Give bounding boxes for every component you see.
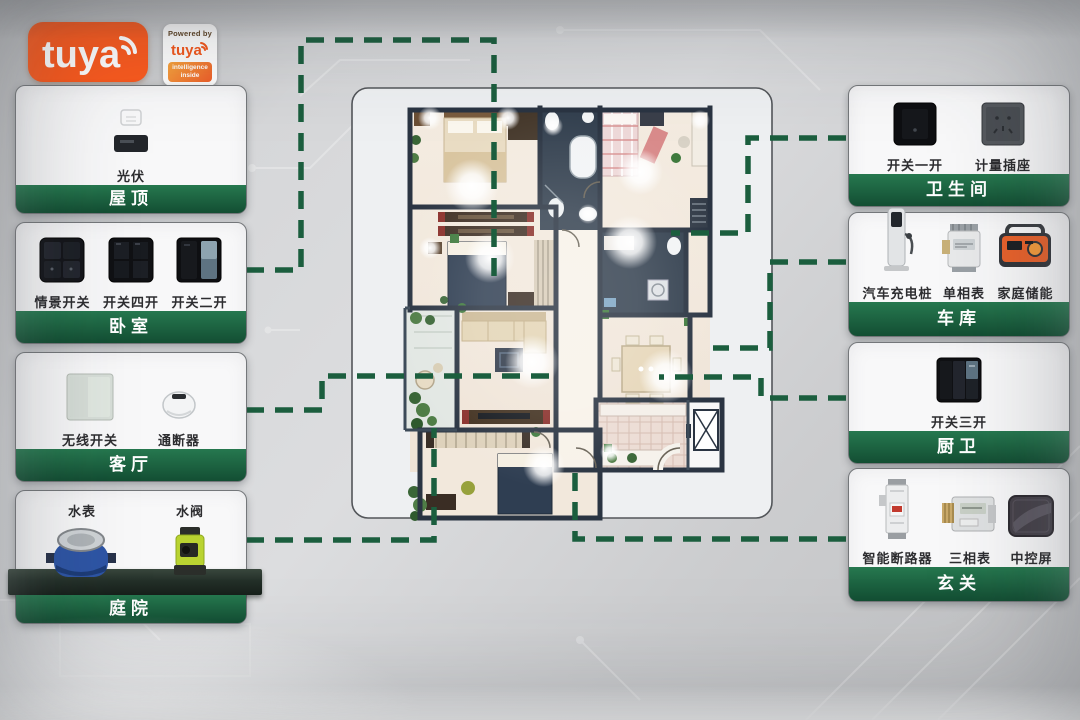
device-switch-4gang: 开关四开 bbox=[103, 237, 159, 311]
badge-intelligence-inside-text: intelligence inside bbox=[168, 62, 212, 82]
device-solar: 光伏 bbox=[108, 107, 154, 185]
switch-3gang-icon bbox=[936, 357, 982, 403]
device-label: 通断器 bbox=[158, 430, 200, 449]
scene-switch-icon bbox=[39, 237, 85, 283]
switch-1gang-icon bbox=[893, 102, 937, 146]
device-scene-switch: 情景开关 bbox=[34, 237, 90, 311]
floor-plan bbox=[390, 106, 730, 521]
device-switch-1gang: 开关一开 bbox=[887, 102, 943, 174]
device-label: 计量插座 bbox=[975, 155, 1031, 174]
metering-socket-icon bbox=[981, 102, 1025, 146]
tuya-logo-text: tuya bbox=[42, 34, 121, 76]
panel-bathroom: 开关一开 计量插座 卫生间 bbox=[848, 85, 1070, 207]
device-label: 开关三开 bbox=[931, 412, 987, 431]
panel-kitchen-bath: 开关三开 厨卫 bbox=[848, 342, 1070, 464]
tuya-logo: tuya bbox=[28, 22, 148, 82]
panel-title-kitchen-bath: 厨卫 bbox=[849, 431, 1069, 463]
panel-entrance: 智能断路器 三相表 中控屏 玄关 bbox=[848, 468, 1070, 602]
device-label: 光伏 bbox=[117, 166, 145, 185]
panel-title-entrance: 玄关 bbox=[849, 567, 1069, 601]
device-smart-breaker: 智能断路器 bbox=[862, 479, 932, 567]
on-off-module-icon bbox=[159, 385, 199, 421]
device-label: 三相表 bbox=[949, 548, 991, 567]
panel-courtyard: 水表 水阀 庭院 bbox=[15, 490, 247, 624]
device-label: 无线开关 bbox=[62, 430, 118, 449]
device-label: 开关一开 bbox=[887, 155, 943, 174]
device-label: 家庭储能 bbox=[997, 283, 1053, 302]
badge-tuya-mini-logo: tuya bbox=[168, 38, 212, 60]
switch-4gang-icon bbox=[108, 237, 154, 283]
water-valve-icon bbox=[168, 527, 212, 579]
water-meter-icon bbox=[46, 525, 116, 581]
device-label: 情景开关 bbox=[34, 292, 90, 311]
panel-roof: 光伏 屋顶 bbox=[15, 85, 247, 214]
device-label: 单相表 bbox=[943, 283, 985, 302]
badge-powered-by-text: Powered by bbox=[168, 29, 212, 38]
device-label: 中控屏 bbox=[1010, 548, 1052, 567]
panel-title-roof: 屋顶 bbox=[16, 185, 246, 213]
device-label: 水阀 bbox=[176, 501, 204, 520]
device-label: 水表 bbox=[68, 501, 96, 520]
device-label: 汽车充电桩 bbox=[862, 283, 932, 302]
panel-title-living-room: 客厅 bbox=[16, 449, 246, 481]
device-three-phase-meter: 三相表 bbox=[940, 491, 1000, 567]
exhibit-board: tuya Powered by tuya intelligence inside… bbox=[0, 0, 1080, 720]
panel-title-courtyard: 庭院 bbox=[16, 595, 246, 623]
powered-by-tuya-badge: Powered by tuya intelligence inside bbox=[163, 24, 217, 86]
panel-title-bathroom: 卫生间 bbox=[849, 174, 1069, 206]
panel-bedroom: 情景开关 开关四开 开关二开 卧室 bbox=[15, 222, 247, 344]
three-phase-meter-icon bbox=[940, 491, 1000, 539]
wireless-switch-icon bbox=[66, 373, 114, 421]
panel-title-garage: 车库 bbox=[849, 302, 1069, 336]
solar-inverter-icon bbox=[108, 107, 154, 157]
svg-text:tuya: tuya bbox=[171, 42, 203, 59]
device-label: 开关四开 bbox=[103, 292, 159, 311]
panel-title-bedroom: 卧室 bbox=[16, 311, 246, 343]
device-control-screen: 中控屏 bbox=[1007, 493, 1055, 567]
device-on-off-module: 通断器 bbox=[158, 385, 200, 449]
home-battery-icon bbox=[995, 224, 1055, 274]
device-switch-2gang: 开关二开 bbox=[171, 237, 227, 311]
control-screen-icon bbox=[1007, 493, 1055, 539]
device-label: 开关二开 bbox=[171, 292, 227, 311]
tuya-logo-art: tuya bbox=[28, 22, 148, 82]
ev-charger-icon bbox=[873, 206, 921, 274]
panel-living-room: 无线开关 通断器 客厅 bbox=[15, 352, 247, 482]
device-switch-3gang: 开关三开 bbox=[931, 357, 987, 431]
single-phase-meter-icon bbox=[940, 222, 988, 274]
device-ev-charger: 汽车充电桩 bbox=[862, 206, 932, 302]
device-metering-socket: 计量插座 bbox=[975, 102, 1031, 174]
panel-garage: 汽车充电桩 单相表 家庭储能 bbox=[848, 212, 1070, 337]
smart-breaker-icon bbox=[874, 479, 920, 539]
device-single-phase-meter: 单相表 bbox=[940, 222, 988, 302]
device-wireless-switch: 无线开关 bbox=[62, 373, 118, 449]
device-home-battery: 家庭储能 bbox=[995, 224, 1055, 302]
switch-2gang-icon bbox=[176, 237, 222, 283]
device-label: 智能断路器 bbox=[862, 548, 932, 567]
